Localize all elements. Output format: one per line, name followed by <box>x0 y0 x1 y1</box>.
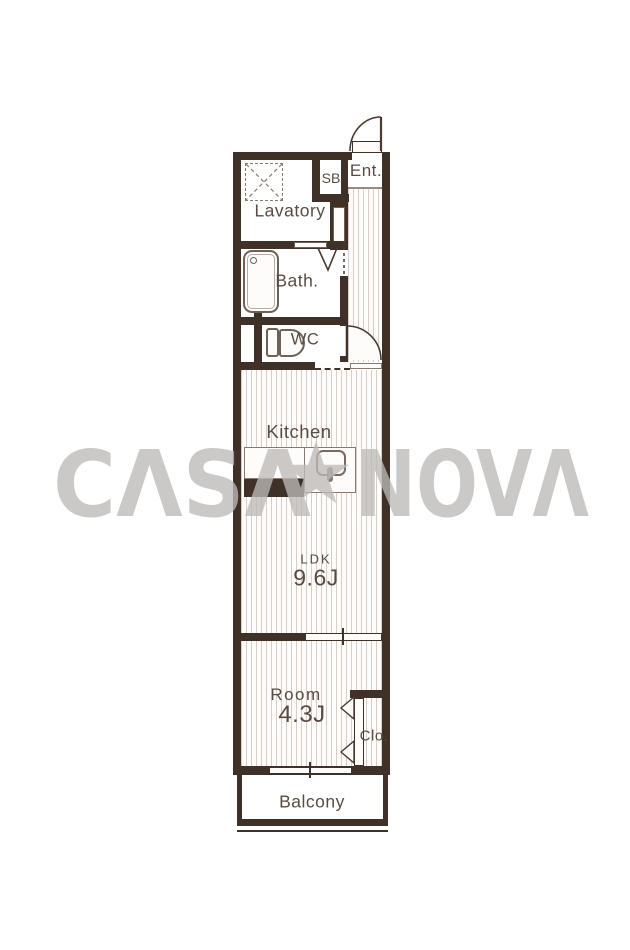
balcony-rail-line <box>237 830 388 832</box>
wall <box>241 766 270 775</box>
window-tick <box>309 762 311 778</box>
wc-sliding-door <box>315 362 350 370</box>
kitchen-half-wall <box>244 478 304 497</box>
label-lavatory: Lavatory <box>254 201 325 222</box>
entry-step-line <box>348 187 382 189</box>
wall <box>233 633 305 641</box>
label-wc: WC <box>291 331 320 350</box>
label-balcony: Balcony <box>279 792 345 813</box>
label-room-size: 4.3J <box>278 701 325 729</box>
wall <box>237 819 388 826</box>
label-ldk-size: 9.6J <box>293 565 338 592</box>
floor-kitchen-ldk <box>241 370 382 633</box>
wall <box>351 766 390 775</box>
washing-machine-pan-icon <box>245 163 283 201</box>
wall <box>383 775 388 825</box>
label-closet: Clo. <box>360 728 389 745</box>
wall <box>233 362 315 370</box>
wall <box>237 775 242 825</box>
toilet-tank-icon <box>266 328 279 357</box>
bath-drain-icon <box>250 257 257 264</box>
label-bath: Bath. <box>275 271 318 292</box>
wall <box>233 152 352 160</box>
watermark-text-right: NOVΛ <box>355 431 589 538</box>
bathtub-icon <box>243 250 279 313</box>
lavatory-door <box>333 207 345 245</box>
wall <box>233 317 348 325</box>
label-entrance: Ent. <box>350 161 382 181</box>
faucet-icon <box>327 467 333 482</box>
bath-folding-door-icon <box>318 248 337 270</box>
wall <box>382 152 390 775</box>
wall <box>233 241 348 249</box>
floor-hallway <box>348 188 382 362</box>
sliding-door-tick <box>342 628 344 645</box>
hall-threshold <box>350 363 382 369</box>
label-kitchen: Kitchen <box>266 421 331 443</box>
label-shoe-box: SB <box>322 170 341 186</box>
bath-wall-panel <box>294 242 327 248</box>
floorplan-canvas: Ent. SB Lavatory Bath. WC Kitchen LDK 9.… <box>0 0 630 950</box>
entrance-threshold <box>352 141 382 153</box>
wall <box>350 690 390 698</box>
